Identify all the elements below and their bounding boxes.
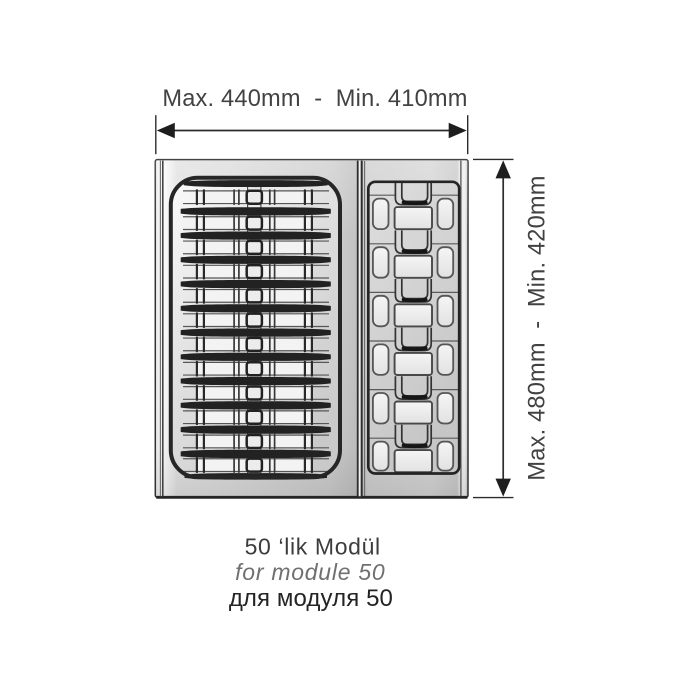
svg-text:Max. 480mm - Min. 420mm: Max. 480mm - Min. 420mm <box>524 175 550 480</box>
svg-text:50 ‘lik Modül: 50 ‘lik Modül <box>245 534 381 560</box>
svg-text:for module 50: for module 50 <box>235 559 385 585</box>
svg-text:для модуля 50: для модуля 50 <box>229 585 393 612</box>
svg-text:Max. 440mm - Min. 410mm: Max. 440mm - Min. 410mm <box>162 86 467 112</box>
